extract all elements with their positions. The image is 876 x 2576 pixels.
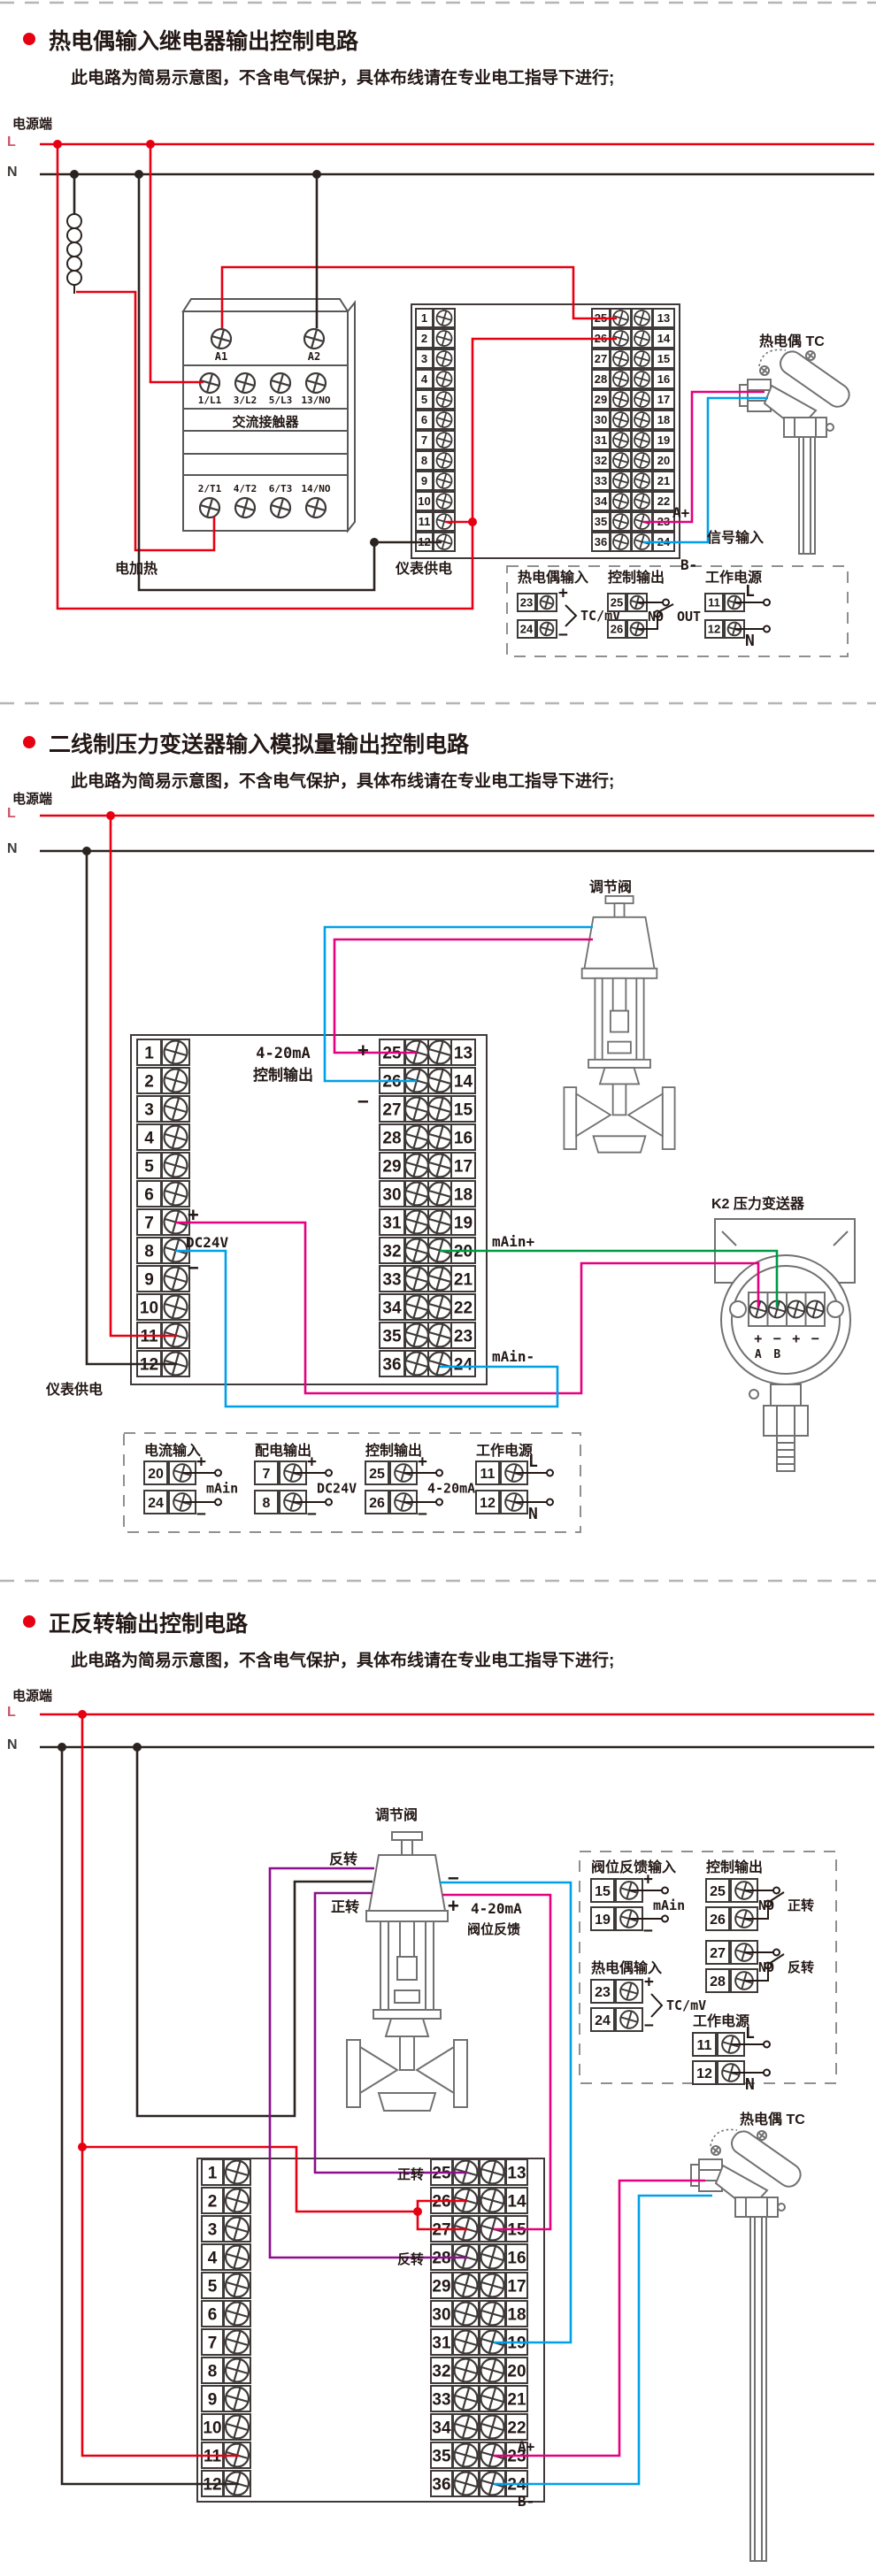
terminal-screw-icon [226, 2331, 249, 2354]
legend-terminal-number: 19 [595, 1913, 611, 1928]
terminal-number: 18 [454, 1185, 473, 1204]
terminal-screw-icon [165, 1126, 188, 1149]
terminal-screw-icon [634, 473, 649, 488]
terminal-number: 3 [208, 2220, 218, 2239]
s2-out2-label: 控制输出 [253, 1066, 313, 1084]
legend-terminal-number: 25 [369, 1467, 385, 1482]
terminal-number: 30 [432, 2305, 450, 2324]
terminal-screw-icon [481, 2161, 504, 2184]
terminal-number: 20 [507, 2362, 526, 2380]
s2-main-minus-label: mAin- [492, 1348, 534, 1365]
legend-sign: − [196, 1505, 206, 1523]
legend-sign: L [745, 582, 755, 601]
junction-dot [82, 847, 91, 855]
terminal-screw-icon [306, 373, 326, 393]
terminal-number: 14 [507, 2192, 526, 2211]
terminal-screw-icon [165, 1154, 188, 1177]
terminal-number: 2 [421, 332, 427, 345]
s2-dc-label: DC24V [186, 1234, 229, 1251]
terminal-screw-icon [455, 2416, 478, 2439]
terminal-number: 3 [421, 352, 427, 365]
legend-sign: − [558, 625, 568, 644]
terminal-screw-icon [226, 2274, 249, 2297]
terminal-screw-icon [405, 1154, 428, 1177]
legend-terminal-number: 11 [708, 596, 720, 609]
legend-tail-label: OUT [677, 609, 701, 625]
terminal-screw-icon [613, 473, 628, 488]
s1-meter-supply-label: 仪表供电 [395, 560, 452, 577]
contactor-terminal-label: 3/L2 [234, 395, 257, 406]
legend-tail-label: DC24V [317, 1481, 357, 1497]
legend-item: 控制输出2526NO正转2728NO反转 [706, 1859, 814, 1992]
terminal-number: 31 [432, 2334, 451, 2352]
legend-tail-label: TC/mV [666, 1997, 706, 2013]
terminal-number: 29 [382, 1157, 401, 1176]
contactor-terminal-label: 13/NO [301, 395, 330, 406]
legend-item: 工作电源1112LN [693, 2012, 770, 2094]
s3-valve-label: 调节阀 [375, 1806, 418, 1823]
terminal-number: 31 [595, 433, 607, 447]
terminal-number: 27 [595, 352, 607, 365]
terminal-number: 2 [144, 1072, 154, 1091]
terminal-number: 35 [595, 515, 607, 528]
terminal-number: 4 [208, 2249, 218, 2267]
s2-dc-plus-label: + [188, 1204, 199, 1225]
s2-main-plus-label: mAin+ [492, 1233, 535, 1250]
thermocouple-probe [750, 2217, 766, 2561]
terminal-number: 7 [208, 2334, 218, 2352]
s2-k2-label: K2 压力变送器 [711, 1195, 805, 1212]
terminal-screw-icon [437, 331, 452, 346]
terminal-number: 35 [432, 2447, 451, 2465]
terminal-screw-icon [634, 412, 649, 427]
terminal-screw-icon [306, 498, 326, 517]
terminal-screw-icon [405, 1211, 428, 1234]
terminal-screw-icon [613, 494, 628, 509]
terminal-screw-icon [428, 1211, 451, 1234]
terminal-number: 15 [454, 1100, 473, 1119]
terminal-screw-icon [437, 473, 452, 488]
junction-dot [413, 2207, 422, 2216]
s3-fwd2-label: 正转 [397, 2166, 424, 2182]
junction-dot [312, 170, 321, 179]
legend-item-title: 阀位反馈输入 [591, 1859, 676, 1875]
terminal-screw-icon [405, 1324, 428, 1347]
terminal-number: 3 [144, 1100, 154, 1119]
terminal-number: 16 [657, 372, 670, 386]
legend-terminal-number: 24 [520, 623, 534, 636]
legend-terminal-number: 23 [520, 596, 533, 609]
terminal-screw-icon [613, 351, 628, 366]
legend-no-tag: NO [648, 609, 664, 625]
terminal-screw-icon [271, 373, 290, 393]
s2-plus-label: + [357, 1039, 369, 1061]
pressure-transmitter-icon [715, 1219, 855, 1471]
terminal-number: 7 [421, 433, 427, 447]
legend-terminal-number: 11 [697, 2038, 712, 2053]
terminal-number: 10 [140, 1299, 158, 1317]
legend-item-title: 热电偶输入 [518, 569, 588, 586]
terminal-number: 19 [454, 1214, 473, 1232]
terminal-screw-icon [613, 392, 628, 407]
terminal-screw-icon [481, 2359, 504, 2382]
terminal-number: 21 [507, 2390, 526, 2409]
legend-sign: − [418, 1505, 427, 1523]
terminal-number: 8 [144, 1242, 154, 1261]
terminal-number: 34 [595, 494, 608, 508]
terminal-number: 1 [421, 311, 427, 325]
legend-item-title: 控制输出 [608, 569, 665, 586]
terminal-strip: 1251322614327154281652917630187311983220… [131, 1035, 487, 1384]
legend-sign: − [644, 2016, 654, 2035]
terminal-number: 27 [382, 1100, 401, 1119]
legend-item: 配电输出78+−DC24V [255, 1442, 357, 1523]
terminal-screw-icon [613, 453, 628, 468]
s3-a-plus-label: A+ [518, 2438, 535, 2455]
s3-b-minus-label: B- [518, 2493, 534, 2510]
legend-tail-label: mAin [653, 1897, 685, 1913]
thermocouple-icon [691, 2127, 804, 2217]
terminal-number: 4 [144, 1129, 154, 1147]
s2-valve-label: 调节阀 [589, 878, 632, 895]
terminal-screw-icon [235, 498, 255, 517]
terminal-screw-icon [613, 412, 628, 427]
s2-meter-supply-label: 仪表供电 [45, 1381, 103, 1398]
terminal-screw-icon [405, 1126, 428, 1149]
terminal-number: 21 [454, 1270, 473, 1289]
legend-terminal-number: 26 [369, 1496, 385, 1511]
terminal-number: 13 [507, 2164, 526, 2182]
terminal-screw-icon [481, 2388, 504, 2411]
legend-tail-label: 正转 [788, 1897, 814, 1913]
s1-heater-label: 电加热 [115, 560, 158, 577]
terminal-screw-icon [541, 623, 554, 636]
terminal-screw-icon [481, 2303, 504, 2326]
legend-terminal-number: 20 [148, 1467, 164, 1482]
s3-minus-label: − [448, 1867, 459, 1889]
terminal-screw-icon [455, 2274, 478, 2297]
contactor-name: 交流接触器 [232, 414, 299, 430]
s2-minus-label: − [357, 1091, 369, 1112]
terminal-number: 1 [144, 1044, 154, 1062]
terminal-screw-icon [165, 1041, 188, 1064]
legend-item-title: 配电输出 [255, 1442, 311, 1459]
terminal-screw-icon [613, 534, 628, 549]
legend-sign: + [418, 1453, 427, 1471]
legend-item: 热电偶输入2324+−TC/mV [591, 1959, 706, 2035]
terminal-number: 24 [454, 1355, 473, 1374]
terminal-screw-icon [634, 331, 649, 346]
legend-terminal-number: 12 [708, 623, 720, 636]
terminal-screw-icon [437, 494, 452, 509]
terminal-screw-icon [428, 1069, 451, 1092]
junction-dot [78, 1710, 87, 1719]
terminal-screw-icon [437, 412, 452, 427]
legend-terminal-number: 27 [710, 1946, 726, 1961]
legend-terminal-number: 28 [710, 1974, 726, 1989]
legend-item-title: 工作电源 [476, 1442, 533, 1459]
legend-terminal-number: 24 [148, 1496, 164, 1511]
terminal-screw-icon [634, 392, 649, 407]
terminal-number: 34 [382, 1299, 402, 1317]
terminal-screw-icon [226, 2303, 249, 2326]
terminal-screw-icon [455, 2331, 478, 2354]
legend-item: 工作电源1112LN [476, 1442, 553, 1523]
terminal-screw-icon [226, 2189, 249, 2212]
junction-dot [133, 1743, 142, 1752]
terminal-screw-icon [428, 1324, 451, 1347]
terminal-screw-icon [541, 596, 554, 609]
terminal-screw-icon [481, 2274, 504, 2297]
legend-item: 电流输入2024+−mAin [144, 1442, 238, 1523]
terminal-number: 13 [454, 1044, 473, 1062]
terminal-number: 6 [208, 2305, 218, 2324]
terminal-screw-icon [437, 372, 452, 387]
terminal-screw-icon [455, 2388, 478, 2411]
terminal-screw-icon [613, 514, 628, 529]
legend-terminal-number: 7 [263, 1467, 271, 1482]
s1-signal-label: 信号输入 [707, 529, 764, 546]
terminal-number: 1 [208, 2164, 218, 2182]
terminal-screw-icon [620, 2011, 638, 2028]
terminal-number: 18 [507, 2305, 526, 2324]
s3-rev2-label: 反转 [397, 2251, 424, 2267]
transmitter-letter: B [773, 1348, 780, 1361]
terminal-screw-icon [405, 1296, 428, 1319]
legend-sign: + [558, 584, 568, 602]
terminal-screw-icon [226, 2246, 249, 2269]
terminal-screw-icon [620, 1982, 638, 2000]
legend-item: 热电偶输入2324+−TC/mV [518, 569, 620, 644]
junction-dot [106, 811, 115, 820]
legend-terminal-number: 26 [710, 1913, 726, 1928]
terminal-screw-icon [634, 372, 649, 387]
terminal-screw-icon [634, 351, 649, 366]
terminal-number: 20 [657, 454, 670, 467]
terminal-screw-icon [235, 373, 255, 393]
junction-dot [468, 517, 477, 526]
terminal-screw-icon [634, 310, 649, 326]
terminal-screw-icon [428, 1353, 451, 1376]
transmitter-sign: + [754, 1330, 762, 1346]
terminal-number: 22 [657, 494, 670, 508]
terminal-screw-icon [200, 498, 219, 517]
legend-tail-label: mAin [206, 1481, 238, 1497]
contactor-terminal-label: 14/NO [301, 483, 330, 494]
terminal-screw-icon [437, 453, 452, 468]
terminal-screw-icon [405, 1098, 428, 1121]
terminal-number: 8 [421, 454, 427, 467]
contactor-terminal-label: 1/L1 [198, 395, 222, 406]
terminal-number: 15 [657, 352, 670, 365]
terminal-screw-icon [428, 1183, 451, 1206]
terminal-screw-icon [437, 433, 452, 448]
terminal-screw-icon [437, 392, 452, 407]
legend-sign: + [643, 1870, 653, 1889]
legend-terminal-number: 12 [480, 1496, 496, 1511]
terminal-number: 22 [454, 1299, 473, 1317]
s1-tc-label: 热电偶 TC [759, 333, 825, 349]
legend-item-title: 工作电源 [693, 2012, 749, 2029]
legend-no-tag: NO [758, 1897, 774, 1913]
terminal-screw-icon [165, 1296, 188, 1319]
terminal-screw-icon [481, 2246, 504, 2269]
terminal-screw-icon [428, 1126, 451, 1149]
legend-terminal-number: 26 [611, 623, 623, 636]
thermocouple-probe [799, 437, 815, 554]
junction-dot [78, 2143, 87, 2151]
legend-sign: − [643, 1921, 653, 1940]
terminal-screw-icon [481, 2189, 504, 2212]
contactor-terminal-label: A1 [215, 350, 227, 363]
terminal-screw-icon [437, 310, 452, 326]
terminal-number: 17 [507, 2277, 526, 2296]
terminal-number: 36 [595, 535, 607, 548]
terminal-number: 18 [657, 413, 670, 426]
legend-sign: L [745, 2024, 755, 2043]
terminal-number: 14 [657, 332, 671, 345]
terminal-screw-icon [788, 1301, 804, 1318]
s3-rev-label: 反转 [329, 1851, 357, 1867]
terminal-number: 6 [144, 1185, 154, 1204]
transmitter-sign: + [792, 1330, 800, 1346]
terminal-screw-icon [226, 2161, 249, 2184]
terminal-screw-icon [405, 1239, 428, 1262]
terminal-number: 16 [454, 1129, 473, 1147]
terminal-number: 16 [507, 2249, 526, 2267]
terminal-number: 5 [208, 2277, 218, 2296]
terminal-screw-icon [428, 1296, 451, 1319]
terminal-screw-icon [304, 329, 324, 349]
terminal-number: 29 [595, 393, 607, 406]
terminal-number: 9 [144, 1270, 154, 1289]
terminal-number: 4 [421, 372, 428, 386]
legend-sign: N [745, 2075, 755, 2094]
terminal-screw-icon [481, 2416, 504, 2439]
terminal-screw-icon [455, 2359, 478, 2382]
terminal-screw-icon [165, 1098, 188, 1121]
terminal-number: 29 [432, 2277, 450, 2296]
terminal-screw-icon [428, 1098, 451, 1121]
terminal-number: 7 [144, 1214, 154, 1232]
legend-terminal-number: 23 [595, 1985, 611, 2000]
legend-terminal-number: 25 [710, 1884, 726, 1899]
terminal-screw-icon [165, 1268, 188, 1291]
legend-terminal-number: 15 [595, 1884, 611, 1899]
legend-tail-label: 4-20mA [427, 1481, 475, 1497]
terminal-number: 11 [419, 515, 431, 528]
terminal-screw-icon [613, 433, 628, 448]
terminal-number: 10 [418, 494, 430, 508]
terminal-screw-icon [165, 1069, 188, 1092]
terminal-number: 5 [421, 393, 427, 406]
legend-item-title: 电流输入 [144, 1442, 201, 1459]
legend-terminal-number: 11 [480, 1467, 496, 1482]
s2-dc-minus-label: − [188, 1257, 199, 1278]
terminal-number: 8 [208, 2362, 218, 2380]
legend-terminal-number: 12 [696, 2066, 712, 2081]
terminal-number: 36 [432, 2475, 450, 2494]
terminal-screw-icon [455, 2303, 478, 2326]
terminal-screw-icon [405, 1268, 428, 1291]
legend-terminal-number: 24 [595, 2013, 611, 2028]
terminal-screw-icon [226, 2416, 249, 2439]
contactor-terminal-label: 6/T3 [269, 483, 293, 494]
terminal-screw-icon [634, 453, 649, 468]
heater-coil-icon [67, 211, 81, 294]
legend-sign: + [644, 1973, 654, 1991]
terminal-number: 32 [382, 1242, 401, 1261]
terminal-number: 33 [432, 2390, 450, 2409]
contactor-terminal-label: 4/T2 [234, 483, 257, 494]
terminal-screw-icon [226, 2388, 249, 2411]
terminal-number: 31 [382, 1214, 402, 1232]
s3-plus-label: + [448, 1895, 459, 1916]
terminal-number: 17 [657, 393, 670, 406]
terminal-number: 9 [208, 2390, 218, 2409]
legend-no-tag: NO [758, 1959, 774, 1975]
terminal-screw-icon [807, 1301, 824, 1318]
terminal-screw-icon [165, 1183, 188, 1206]
terminal-number: 9 [421, 474, 427, 487]
s1-a-plus-label: A+ [672, 504, 690, 521]
legend-tail-label: 反转 [788, 1959, 814, 1975]
contactor-terminal-label: 2/T1 [198, 483, 222, 494]
junction-dot [58, 1743, 66, 1752]
terminal-screw-icon [634, 494, 649, 509]
terminal-screw-icon [226, 2218, 249, 2241]
junction-dot [370, 538, 379, 547]
terminal-number: 17 [454, 1157, 473, 1176]
junction-dot [70, 170, 79, 179]
terminal-number: 30 [382, 1185, 401, 1204]
terminal-strip: 1251322614327154281652917630187311983220… [197, 2158, 544, 2502]
legend-item: 工作电源1112LN [705, 569, 770, 650]
terminal-screw-icon [455, 2444, 478, 2467]
legend-terminal-number: 8 [263, 1496, 271, 1511]
legend-sign: N [528, 1505, 538, 1523]
terminal-strip: 1251322614327154281652917630187311983220… [411, 304, 680, 558]
legend-item: 控制输出2526NOOUT [608, 569, 701, 638]
legend-sign: + [307, 1453, 317, 1471]
terminal-number: 34 [432, 2419, 451, 2437]
terminal-screw-icon [428, 1268, 451, 1291]
contactor-terminal-label: A2 [308, 350, 320, 363]
wire-cyn [175, 1251, 557, 1407]
transmitter-sign: − [773, 1330, 781, 1346]
wiring-diagram-canvas: A1 A2 1/L1 3/L2 5/L3 13/NO 交流接触器 2/T1 4/… [0, 0, 876, 2576]
wiring-document: 热电偶输入继电器输出控制电路 此电路为简易示意图，不含电气保护，具体布线请在专业… [0, 0, 876, 2576]
s2-out1-label: 4-20mA [256, 1045, 310, 1062]
legend-sign: − [307, 1505, 317, 1523]
wire-blk [137, 1747, 373, 2116]
terminal-number: 28 [382, 1129, 401, 1147]
terminal-number: 35 [382, 1327, 402, 1345]
terminal-screw-icon [634, 433, 649, 448]
s3-fb1-label: 4-20mA [471, 1900, 522, 1917]
terminal-screw-icon [211, 329, 231, 349]
terminal-number: 22 [507, 2419, 526, 2437]
control-valve-icon [564, 896, 674, 1153]
terminal-number: 32 [432, 2362, 450, 2380]
legend-sign: N [745, 632, 755, 650]
terminal-screw-icon [271, 498, 290, 517]
legend-item-title: 控制输出 [706, 1859, 763, 1875]
contactor-terminal-label: 5/L3 [269, 395, 293, 406]
legend-sign: + [196, 1453, 206, 1471]
terminal-number: 23 [454, 1327, 473, 1345]
transmitter-letter: A [755, 1348, 762, 1361]
